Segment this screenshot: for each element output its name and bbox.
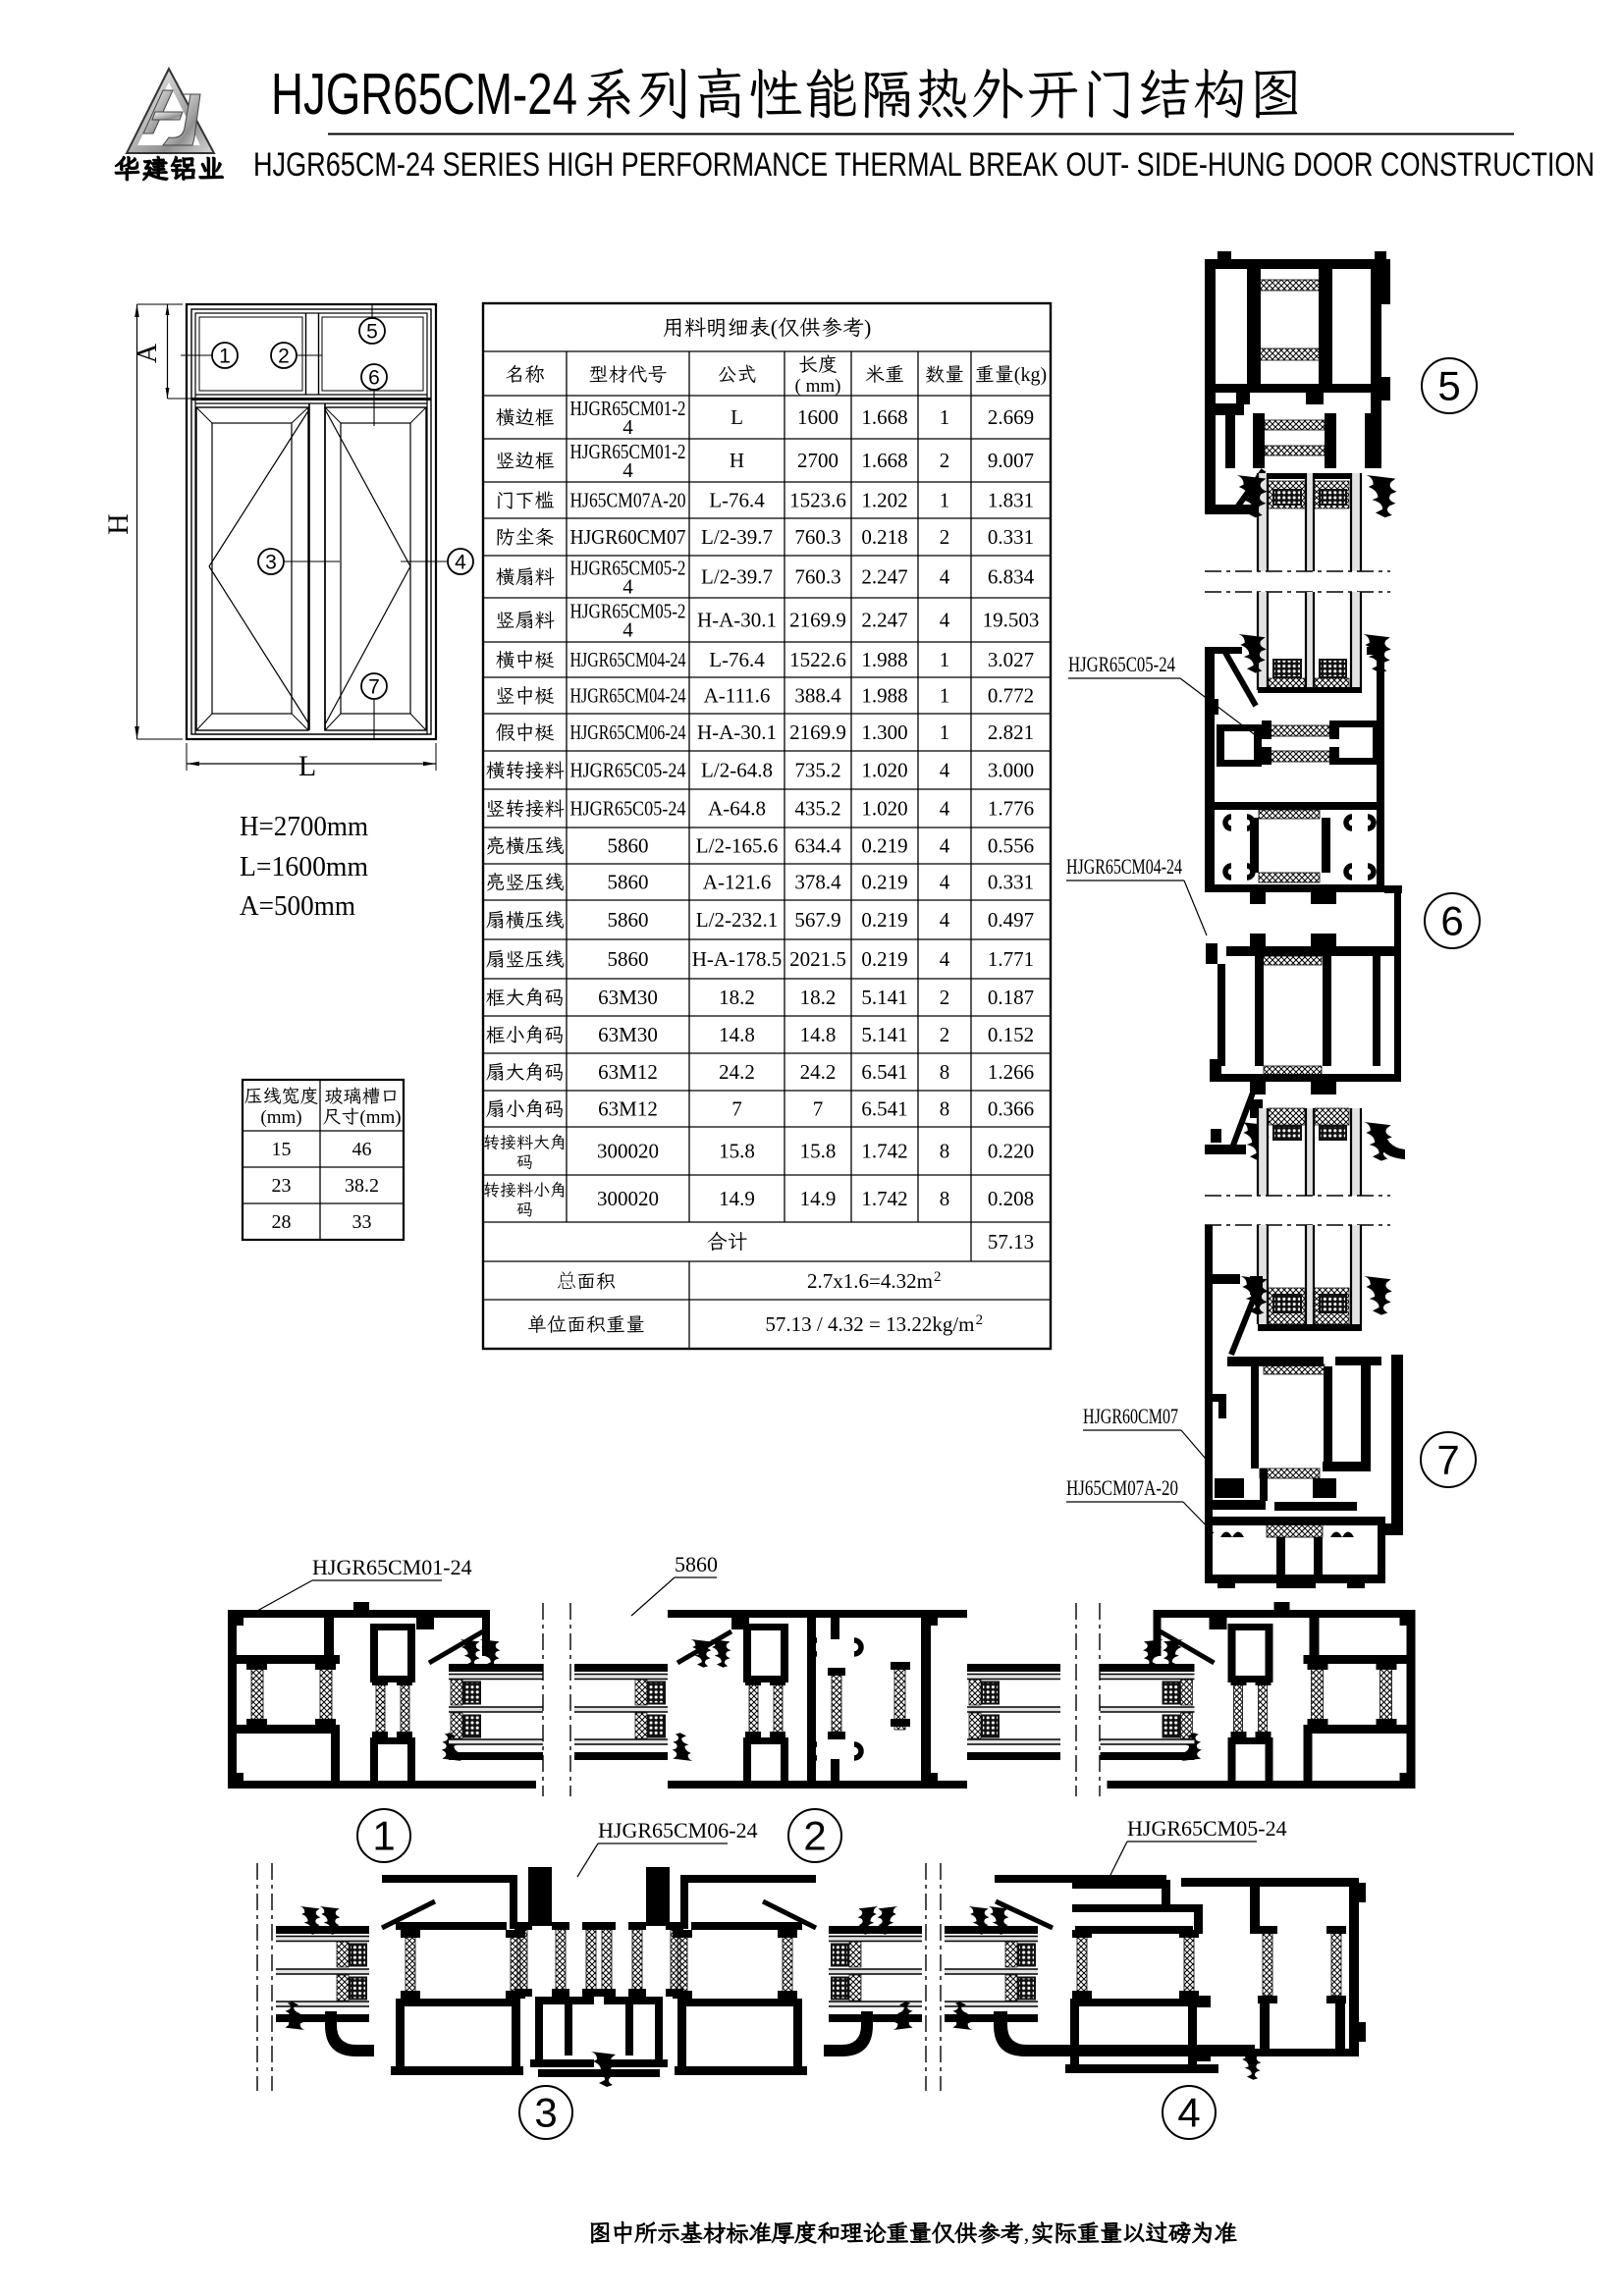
- svg-text:8: 8: [940, 1060, 950, 1084]
- svg-text:HJGR65C05-24: HJGR65C05-24: [1068, 652, 1175, 676]
- svg-text:63M30: 63M30: [598, 1023, 658, 1046]
- svg-text:4: 4: [455, 551, 466, 573]
- svg-text:0.219: 0.219: [861, 834, 907, 858]
- svg-text:7: 7: [368, 675, 380, 698]
- svg-text:5: 5: [366, 320, 378, 343]
- svg-text:0.220: 0.220: [988, 1140, 1034, 1163]
- svg-text:4: 4: [622, 458, 633, 482]
- svg-text:5860: 5860: [675, 1552, 718, 1576]
- svg-text:0.187: 0.187: [988, 986, 1034, 1009]
- svg-text:33: 33: [352, 1211, 372, 1233]
- svg-text:HJGR65CM04-24: HJGR65CM04-24: [570, 684, 686, 708]
- svg-text:1.742: 1.742: [861, 1187, 907, 1210]
- svg-text:H: H: [102, 513, 135, 535]
- svg-text:4: 4: [622, 575, 633, 599]
- svg-text:1.831: 1.831: [988, 489, 1034, 512]
- svg-text:28: 28: [272, 1211, 292, 1233]
- svg-text:2: 2: [803, 1813, 826, 1859]
- svg-text:2169.9: 2169.9: [789, 721, 846, 744]
- svg-text:0.366: 0.366: [988, 1097, 1034, 1121]
- svg-text:760.3: 760.3: [794, 565, 840, 589]
- svg-text:2.247: 2.247: [861, 609, 907, 632]
- svg-text:0.556: 0.556: [988, 834, 1034, 858]
- svg-text:HJGR65CM-24 SERIES HIGH PERFO: HJGR65CM-24 SERIES HIGH PERFORMANCE THER…: [253, 146, 1595, 184]
- svg-text:1: 1: [940, 489, 950, 512]
- svg-text:15: 15: [272, 1139, 292, 1160]
- svg-text:A: A: [133, 343, 163, 363]
- svg-text:(kg): (kg): [1014, 364, 1047, 386]
- svg-text:2: 2: [940, 525, 950, 549]
- svg-text:6.834: 6.834: [988, 565, 1035, 589]
- svg-text:HJGR65CM01-24: HJGR65CM01-24: [312, 1555, 472, 1579]
- svg-text:14.8: 14.8: [719, 1023, 755, 1046]
- svg-text:0.331: 0.331: [988, 871, 1034, 894]
- svg-text:4: 4: [940, 947, 950, 971]
- svg-text:HJGR65CM06-24: HJGR65CM06-24: [598, 1818, 758, 1842]
- svg-text:L/2-39.7: L/2-39.7: [701, 525, 773, 549]
- svg-text:14.9: 14.9: [800, 1187, 837, 1210]
- svg-text:8: 8: [940, 1097, 950, 1121]
- svg-text:15.8: 15.8: [719, 1140, 755, 1163]
- svg-text:378.4: 378.4: [794, 871, 841, 894]
- svg-text:( mm): ( mm): [795, 376, 841, 397]
- svg-text:0.331: 0.331: [988, 525, 1034, 549]
- svg-text:0.772: 0.772: [988, 684, 1034, 708]
- svg-text:3: 3: [534, 2090, 557, 2136]
- svg-text:1.742: 1.742: [861, 1140, 907, 1163]
- svg-text:A-64.8: A-64.8: [708, 797, 766, 821]
- svg-text:H-A-30.1: H-A-30.1: [697, 721, 777, 744]
- svg-text:4: 4: [940, 834, 950, 858]
- svg-text:19.503: 19.503: [983, 609, 1040, 632]
- svg-text:0.219: 0.219: [861, 908, 907, 932]
- svg-text:46: 46: [352, 1139, 372, 1160]
- svg-text:L: L: [730, 405, 743, 429]
- svg-text:L/2-64.8: L/2-64.8: [701, 759, 773, 782]
- svg-text:A-121.6: A-121.6: [703, 871, 771, 894]
- svg-text:HJGR65CM06-24: HJGR65CM06-24: [570, 721, 686, 744]
- svg-text:57.13 / 4.32 = 13.22kg/m: 57.13 / 4.32 = 13.22kg/m: [765, 1312, 974, 1336]
- svg-text:6.541: 6.541: [861, 1060, 907, 1084]
- svg-text:7: 7: [731, 1097, 742, 1121]
- svg-text:6: 6: [1440, 898, 1463, 944]
- svg-text:0.208: 0.208: [988, 1187, 1034, 1210]
- svg-text:1.020: 1.020: [861, 759, 907, 782]
- svg-text:2: 2: [976, 1312, 984, 1328]
- svg-text:4: 4: [940, 871, 950, 894]
- svg-text:63M12: 63M12: [598, 1097, 658, 1121]
- svg-text:1.668: 1.668: [861, 405, 907, 429]
- svg-text:2169.9: 2169.9: [789, 609, 846, 632]
- svg-text:HJGR65C05-24: HJGR65C05-24: [570, 759, 686, 782]
- svg-text:4: 4: [940, 797, 950, 821]
- svg-text:1.020: 1.020: [861, 797, 907, 821]
- svg-text:HJGR65CM04-24: HJGR65CM04-24: [570, 648, 686, 671]
- svg-text:2700: 2700: [797, 449, 839, 472]
- svg-text:3.027: 3.027: [988, 648, 1034, 671]
- svg-text:3.000: 3.000: [988, 759, 1034, 782]
- svg-text:5860: 5860: [608, 834, 649, 858]
- svg-text:H=2700mm: H=2700mm: [240, 811, 368, 842]
- svg-text:760.3: 760.3: [794, 525, 840, 549]
- svg-text:A=500mm: A=500mm: [240, 890, 355, 922]
- svg-text:14.8: 14.8: [800, 1023, 837, 1046]
- svg-text:63M12: 63M12: [598, 1060, 658, 1084]
- svg-text:0.218: 0.218: [861, 525, 907, 549]
- svg-text:2: 2: [940, 1023, 950, 1046]
- svg-text:1: 1: [940, 405, 950, 429]
- svg-text:1522.6: 1522.6: [789, 648, 846, 671]
- svg-text:38.2: 38.2: [345, 1175, 379, 1197]
- svg-text:2: 2: [940, 986, 950, 1009]
- svg-text:2.247: 2.247: [861, 565, 907, 589]
- svg-text:1.988: 1.988: [861, 684, 907, 708]
- svg-text:2.669: 2.669: [988, 405, 1034, 429]
- svg-text:23: 23: [272, 1175, 292, 1197]
- svg-text:4: 4: [940, 759, 950, 782]
- svg-text:L=1600mm: L=1600mm: [240, 851, 368, 882]
- svg-text:A-111.6: A-111.6: [704, 684, 771, 708]
- svg-text:5860: 5860: [608, 871, 649, 894]
- svg-text:5.141: 5.141: [861, 986, 907, 1009]
- svg-text:2.821: 2.821: [988, 721, 1034, 744]
- svg-text:HJGR65CM05-24: HJGR65CM05-24: [1127, 1816, 1287, 1841]
- svg-text:4: 4: [622, 618, 633, 642]
- svg-text:0.152: 0.152: [988, 1023, 1034, 1046]
- svg-text:567.9: 567.9: [794, 908, 840, 932]
- svg-text:735.2: 735.2: [794, 759, 840, 782]
- svg-text:HJGR65CM04-24: HJGR65CM04-24: [1066, 854, 1182, 879]
- svg-text:24.2: 24.2: [719, 1060, 755, 1084]
- svg-text:(mm): (mm): [260, 1107, 301, 1128]
- svg-text:18.2: 18.2: [800, 986, 837, 1009]
- svg-text:3: 3: [265, 551, 277, 573]
- svg-text:2.7x1.6=4.32m: 2.7x1.6=4.32m: [807, 1269, 933, 1293]
- svg-text:(mm): (mm): [359, 1107, 401, 1128]
- svg-text:1: 1: [940, 684, 950, 708]
- svg-text:1.771: 1.771: [988, 947, 1034, 971]
- svg-text:L: L: [298, 750, 316, 782]
- svg-text:5.141: 5.141: [861, 1023, 907, 1046]
- svg-text:8: 8: [940, 1187, 950, 1210]
- svg-text:300020: 300020: [597, 1187, 659, 1210]
- svg-text:4: 4: [940, 565, 950, 589]
- svg-text:4: 4: [1177, 2090, 1200, 2136]
- svg-text:6: 6: [368, 366, 380, 389]
- svg-text:300020: 300020: [597, 1140, 659, 1163]
- svg-text:8: 8: [940, 1140, 950, 1163]
- svg-text:L-76.4: L-76.4: [709, 648, 765, 671]
- svg-text:0.219: 0.219: [861, 947, 907, 971]
- svg-text:,: ,: [1024, 2221, 1030, 2246]
- svg-text:5: 5: [1437, 363, 1460, 409]
- svg-text:14.9: 14.9: [719, 1187, 755, 1210]
- svg-text:4: 4: [622, 415, 633, 439]
- svg-text:L-76.4: L-76.4: [709, 489, 765, 512]
- svg-text:): ): [864, 315, 871, 340]
- svg-text:HJ65CM07A-20: HJ65CM07A-20: [1066, 1475, 1178, 1500]
- svg-text:HJGR60CM07: HJGR60CM07: [1083, 1404, 1178, 1428]
- svg-text:2021.5: 2021.5: [789, 947, 846, 971]
- svg-text:5860: 5860: [608, 908, 649, 932]
- svg-text:388.4: 388.4: [794, 684, 841, 708]
- svg-text:1.988: 1.988: [861, 648, 907, 671]
- svg-text:7: 7: [1436, 1437, 1459, 1483]
- svg-text:0.497: 0.497: [988, 908, 1034, 932]
- svg-text:57.13: 57.13: [988, 1230, 1034, 1254]
- svg-text:H-A-30.1: H-A-30.1: [697, 609, 777, 632]
- svg-text:HJ65CM07A-20: HJ65CM07A-20: [570, 489, 686, 512]
- svg-text:15.8: 15.8: [800, 1140, 837, 1163]
- svg-text:634.4: 634.4: [794, 834, 841, 858]
- svg-text:1.266: 1.266: [988, 1060, 1034, 1084]
- svg-text:1: 1: [372, 1813, 395, 1859]
- svg-text:18.2: 18.2: [719, 986, 755, 1009]
- svg-text:1523.6: 1523.6: [789, 489, 846, 512]
- svg-text:H: H: [730, 449, 744, 472]
- svg-text:HJGR60CM07: HJGR60CM07: [570, 525, 686, 549]
- svg-text:1.202: 1.202: [861, 489, 907, 512]
- svg-text:435.2: 435.2: [794, 797, 840, 821]
- svg-text:24.2: 24.2: [800, 1060, 837, 1084]
- svg-text:1.776: 1.776: [988, 797, 1034, 821]
- svg-text:4: 4: [940, 908, 950, 932]
- svg-text:L/2-232.1: L/2-232.1: [696, 908, 778, 932]
- svg-text:H-A-178.5: H-A-178.5: [692, 947, 783, 971]
- svg-text:63M30: 63M30: [598, 986, 658, 1009]
- svg-text:1600: 1600: [797, 405, 839, 429]
- svg-text:6.541: 6.541: [861, 1097, 907, 1121]
- svg-text:1: 1: [940, 721, 950, 744]
- svg-text:2: 2: [278, 345, 290, 367]
- svg-text:2: 2: [940, 449, 950, 472]
- svg-text:HJGR65C05-24: HJGR65C05-24: [570, 797, 686, 821]
- svg-text:1: 1: [219, 345, 231, 367]
- svg-text:(: (: [771, 315, 778, 340]
- svg-text:1.668: 1.668: [861, 449, 907, 472]
- svg-text:2: 2: [934, 1269, 942, 1285]
- svg-text:1.300: 1.300: [861, 721, 907, 744]
- svg-text:4: 4: [940, 609, 950, 632]
- svg-text:5860: 5860: [608, 947, 649, 971]
- svg-text:0.219: 0.219: [861, 871, 907, 894]
- svg-text:1: 1: [940, 648, 950, 671]
- svg-text:HJGR65CM-24: HJGR65CM-24: [271, 62, 577, 127]
- svg-text:9.007: 9.007: [988, 449, 1034, 472]
- svg-text:L/2-39.7: L/2-39.7: [701, 565, 773, 589]
- svg-text:L/2-165.6: L/2-165.6: [696, 834, 778, 858]
- svg-text:7: 7: [813, 1097, 824, 1121]
